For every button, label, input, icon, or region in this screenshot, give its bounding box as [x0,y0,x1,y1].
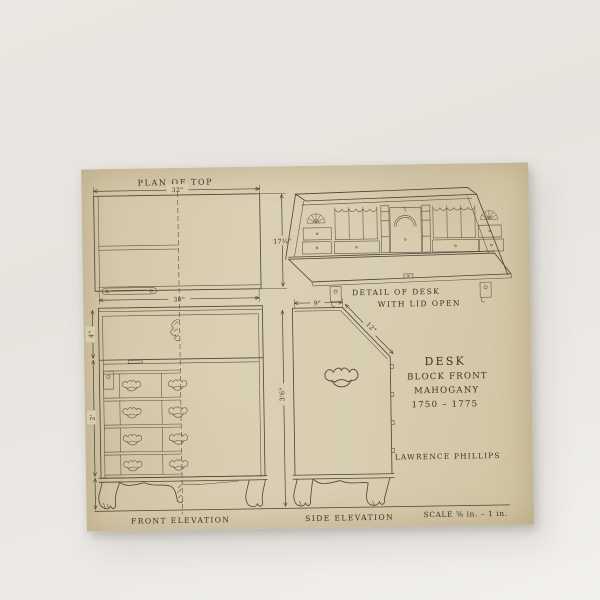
title-line4: 1750 – 1775 [411,399,478,410]
artist-signature: LAWRENCE PHILLIPS [395,451,501,462]
side-elevation-label: SIDE ELEVATION [305,513,394,523]
side-dim-top-depth: 9" [314,300,322,307]
detail-view: DETAIL OF DESK WITH LID OPEN [285,187,513,311]
scale-label: SCALE ⅜ in. – 1 in. [424,509,508,519]
side-dim-height: 3'6" [279,387,286,401]
title-line3: MAHOGANY [414,385,480,396]
detail-caption-line2: WITH LID OPEN [378,299,461,309]
front-elevation-view: 4" 2' [84,191,268,516]
front-elevation-label: FRONT ELEVATION [131,515,231,526]
side-elevation-view: 9" 12" 3'6" [275,297,395,508]
photo-of-drawing: { "scene": { "background_color": "#e9e5e… [0,0,600,600]
drawing-svg: PLAN OF TOP 32" 17¾" 30" [81,163,534,532]
drawing-paper: PLAN OF TOP 32" 17¾" 30" [81,163,534,532]
plan-view: PLAN OF TOP 32" 17¾" 30" [93,176,295,305]
title-line2: BLOCK FRONT [407,371,488,382]
title-block: DESK BLOCK FRONT MAHOGANY 1750 – 1775 LA… [393,354,501,462]
detail-caption-line1: DETAIL OF DESK [352,287,440,297]
title-line1: DESK [424,355,466,369]
front-dim-drawer-section: 2' [90,414,97,420]
front-dim-lid-section: 4" [88,331,95,339]
